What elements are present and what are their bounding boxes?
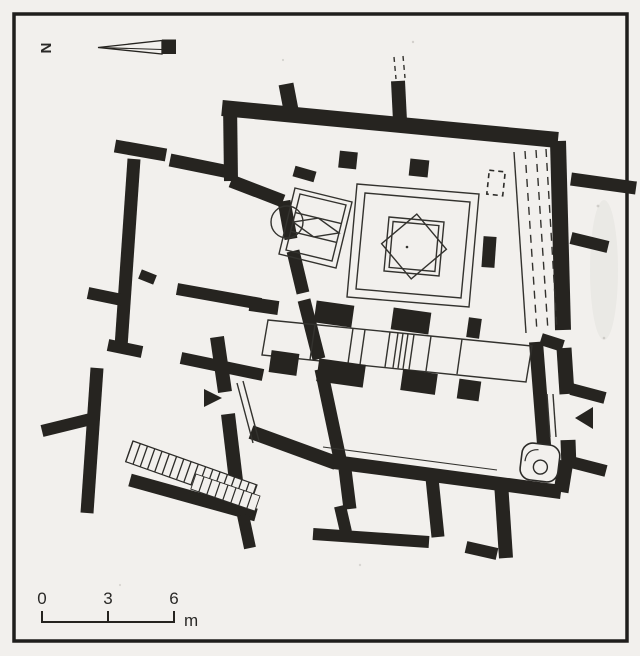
well-feature <box>519 442 561 483</box>
north-arrow-head <box>162 40 176 55</box>
wall-segment <box>340 506 346 532</box>
wall-segment <box>217 337 225 392</box>
well-outline <box>519 442 561 483</box>
speck <box>282 59 284 61</box>
wall-segment <box>561 461 566 492</box>
paper-background <box>0 0 640 656</box>
wall-segment <box>286 84 291 110</box>
wall-segment <box>115 146 166 155</box>
speck <box>603 337 606 340</box>
pier <box>457 379 482 402</box>
wall-segment <box>88 293 122 300</box>
scale-tick-label-6: 6 <box>169 589 178 608</box>
scale-unit-label: m <box>184 611 198 630</box>
wall-segment <box>571 179 636 188</box>
wall-segment <box>230 102 231 181</box>
wall-segment <box>345 469 350 509</box>
wall-segment <box>140 274 155 280</box>
wall-segment <box>501 482 506 558</box>
speck <box>412 41 414 43</box>
wall-segment <box>294 171 315 177</box>
speck <box>119 584 121 586</box>
wall-segment <box>313 534 429 542</box>
wall-segment <box>243 515 250 548</box>
speck <box>359 564 361 566</box>
pier <box>269 350 300 376</box>
wall-segment <box>432 478 438 537</box>
scan-smudge <box>590 200 618 340</box>
wall-segment <box>564 348 567 394</box>
fountain-center-dot <box>406 246 409 249</box>
scale-tick-label-0: 0 <box>37 589 46 608</box>
wall-segment <box>558 141 563 330</box>
wall-segment <box>108 345 142 352</box>
pier <box>338 151 358 170</box>
north-label: N <box>37 43 54 54</box>
wall-segment <box>398 81 400 121</box>
floor-plan-svg: N 0 3 6 m <box>0 0 640 656</box>
wall-segment <box>541 339 563 346</box>
speck <box>597 205 600 208</box>
floor-plan-figure: N 0 3 6 m <box>0 0 640 656</box>
scale-tick-label-3: 3 <box>103 589 112 608</box>
wall-segment <box>466 547 497 554</box>
pier <box>466 317 482 339</box>
pier <box>409 159 430 178</box>
pier <box>481 236 496 268</box>
